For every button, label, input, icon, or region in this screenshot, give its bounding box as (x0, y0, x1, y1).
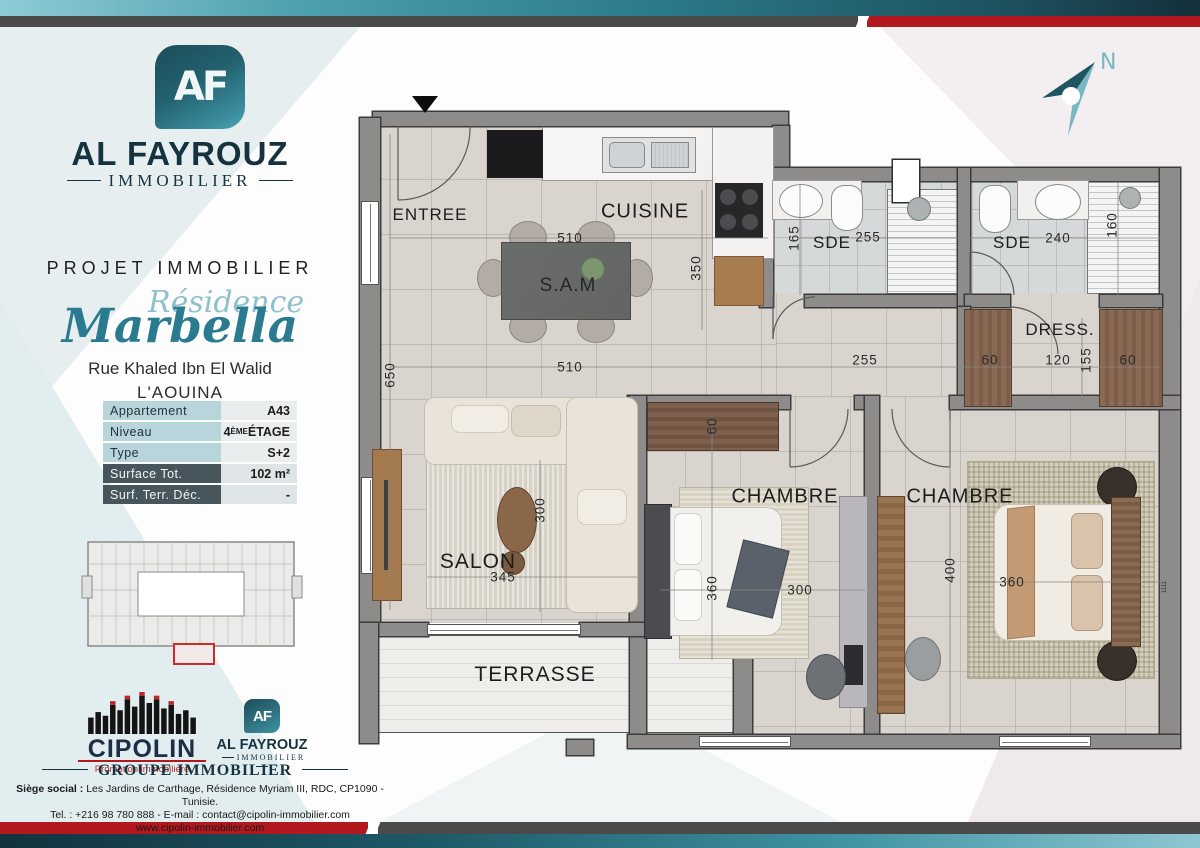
ch1-desk-chair (807, 655, 845, 699)
wall (1100, 295, 1162, 307)
table-row: Appartement A43 (103, 401, 297, 420)
dim-165: 165 (787, 225, 802, 251)
website-line: www.cipolin-immobilier.com (10, 822, 390, 835)
wall (773, 126, 789, 174)
top-bar-strip (0, 16, 1200, 27)
vent-shaft (893, 160, 919, 202)
sink-drainer (652, 143, 688, 167)
wall (965, 295, 1010, 307)
sidebar: AF AL FAYROUZ IMMOBILIER PROJET IMMOBILI… (0, 27, 360, 822)
table-row: Surf. Terr. Déc. - (103, 485, 297, 504)
dim-240: 240 (1045, 231, 1071, 246)
table-row: Surface Tot. 102 m² (103, 464, 297, 483)
group-label: GROUPE IMMOBILIER (0, 762, 390, 780)
top-bar-red (867, 16, 1200, 27)
wall (373, 112, 788, 126)
sde2-toilet (980, 186, 1010, 232)
af-mini-name: AL FAYROUZ (212, 737, 312, 753)
siege-line: Siège social : Les Jardins de Carthage, … (10, 783, 390, 809)
sofa-cushion (452, 406, 508, 432)
cipolin-name: CIPOLIN (78, 739, 206, 762)
wall (580, 623, 646, 636)
dim-300-salon: 300 (533, 497, 548, 523)
pillow (1072, 514, 1102, 568)
bed-throw (1008, 507, 1034, 639)
wall (1160, 168, 1180, 748)
contact-line: Tel. : +216 98 780 888 - E-mail : contac… (10, 809, 390, 822)
sde2-sink (1036, 185, 1080, 219)
sde1-sink (780, 185, 822, 217)
dim-300-ch1: 300 (787, 583, 813, 598)
coffee-table (498, 488, 536, 552)
kitchen-cabinet (715, 257, 763, 305)
sofa-cushion (578, 490, 626, 524)
wall (567, 740, 593, 755)
table-row: Type S+2 (103, 443, 297, 462)
burner (742, 214, 758, 230)
brand-subtitle: IMMOBILIER (0, 171, 360, 191)
footer-address: Siège social : Les Jardins de Carthage, … (10, 783, 390, 835)
pillow (675, 514, 701, 564)
al-fayrouz-mini-logo: AF AL FAYROUZ IMMOBILIER (212, 699, 312, 771)
window-sliding (428, 625, 580, 634)
kitchen-appliance (487, 130, 543, 178)
cipolin-skyline-icon (82, 692, 202, 734)
dim-60-wardrobe: 60 (705, 417, 720, 434)
dim-400: 400 (943, 557, 958, 583)
wall (958, 168, 970, 307)
dim-360-ch1: 360 (705, 575, 720, 601)
burner (720, 189, 736, 205)
room-label-cuisine: CUISINE (601, 201, 689, 224)
table-row: Niveau 4ÈME ÉTAGE (103, 422, 297, 441)
dim-160: 160 (1105, 212, 1120, 238)
bottom-teal-strip (0, 834, 1200, 848)
dim-345: 345 (490, 570, 516, 585)
dim-650: 650 (383, 362, 398, 388)
room-label-dress: DRESS. (1025, 320, 1094, 340)
dim-60-dress-left: 60 (981, 353, 998, 368)
ch1-bed-headboard (645, 505, 671, 638)
room-label-entree: ENTREE (393, 205, 468, 225)
sink-bowl (610, 143, 644, 167)
room-label-sam: S.A.M (540, 275, 597, 297)
ch2-desk (878, 497, 904, 713)
city-label: L'AOUINA (0, 383, 360, 403)
pillow (675, 570, 701, 620)
room-label-chambre1: CHAMBRE (731, 486, 838, 509)
ch2-desk-chair (906, 638, 940, 680)
console-handle (384, 480, 388, 570)
sofa-cushion (512, 406, 560, 436)
burner (742, 189, 758, 205)
pillow (1072, 576, 1102, 630)
al-fayrouz-logo-icon: AF (155, 45, 245, 129)
dim-155: 155 (1079, 347, 1094, 373)
sde1-toilet (832, 186, 862, 230)
top-bar-gray (0, 16, 858, 27)
dim-120: 120 (1045, 353, 1071, 368)
window (362, 202, 378, 284)
ch2-side-table (1098, 642, 1136, 680)
shower-head (1120, 188, 1140, 208)
laptop (844, 645, 863, 685)
burner (720, 214, 736, 230)
brand-name: AL FAYROUZ (0, 135, 360, 173)
ch2-bed-headboard (1112, 498, 1140, 646)
dim-360-ch2: 360 (999, 575, 1025, 590)
wall (360, 623, 378, 743)
dim-255-hall: 255 (852, 353, 878, 368)
project-label: PROJET IMMOBILIER (0, 258, 360, 279)
apartment-info-table: Appartement A43 Niveau 4ÈME ÉTAGE Type S… (103, 401, 297, 506)
wall (805, 295, 965, 307)
wall (865, 396, 879, 746)
shower-head (908, 198, 930, 220)
dim-1111: 1111 (1162, 581, 1168, 593)
dim-60-dress-right: 60 (1119, 353, 1136, 368)
poster: AF AL FAYROUZ IMMOBILIER PROJET IMMOBILI… (0, 0, 1200, 848)
dim-255-sde: 255 (855, 230, 881, 245)
floor-plan: ENTREE CUISINE S.A.M SDE SDE DRESS. SALO… (360, 90, 1180, 770)
street-address: Rue Khaled Ibn El Walid (0, 359, 360, 379)
entrance-arrow-icon (412, 96, 438, 113)
room-label-terrasse: TERRASSE (474, 663, 595, 687)
residence-name: Marbella (0, 299, 360, 354)
room-label-chambre2: CHAMBRE (906, 486, 1013, 509)
bottom-bar-gray (378, 822, 1200, 834)
dim-510-mid: 510 (557, 360, 583, 375)
dim-510-top: 510 (557, 231, 583, 246)
window (700, 737, 790, 746)
logo-monogram: AF (174, 64, 226, 110)
dim-350: 350 (689, 255, 704, 281)
room-label-sde2: SDE (993, 233, 1031, 253)
north-label: N (1100, 50, 1116, 75)
window (1000, 737, 1090, 746)
building-keyplan-icon (80, 532, 305, 667)
room-label-sde1: SDE (813, 233, 851, 253)
top-teal-strip (0, 0, 1200, 16)
af-mini-logo-icon: AF (244, 699, 280, 733)
